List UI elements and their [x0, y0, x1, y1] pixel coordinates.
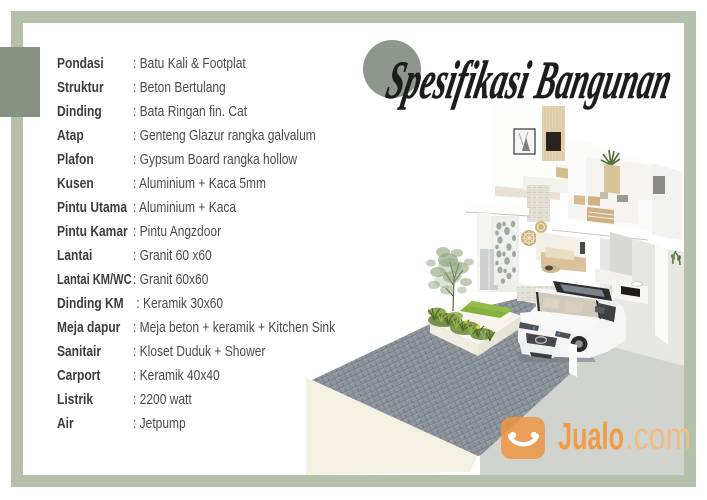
svg-text:.com: .com	[625, 416, 691, 458]
svg-text:Jualo: Jualo	[558, 416, 624, 458]
